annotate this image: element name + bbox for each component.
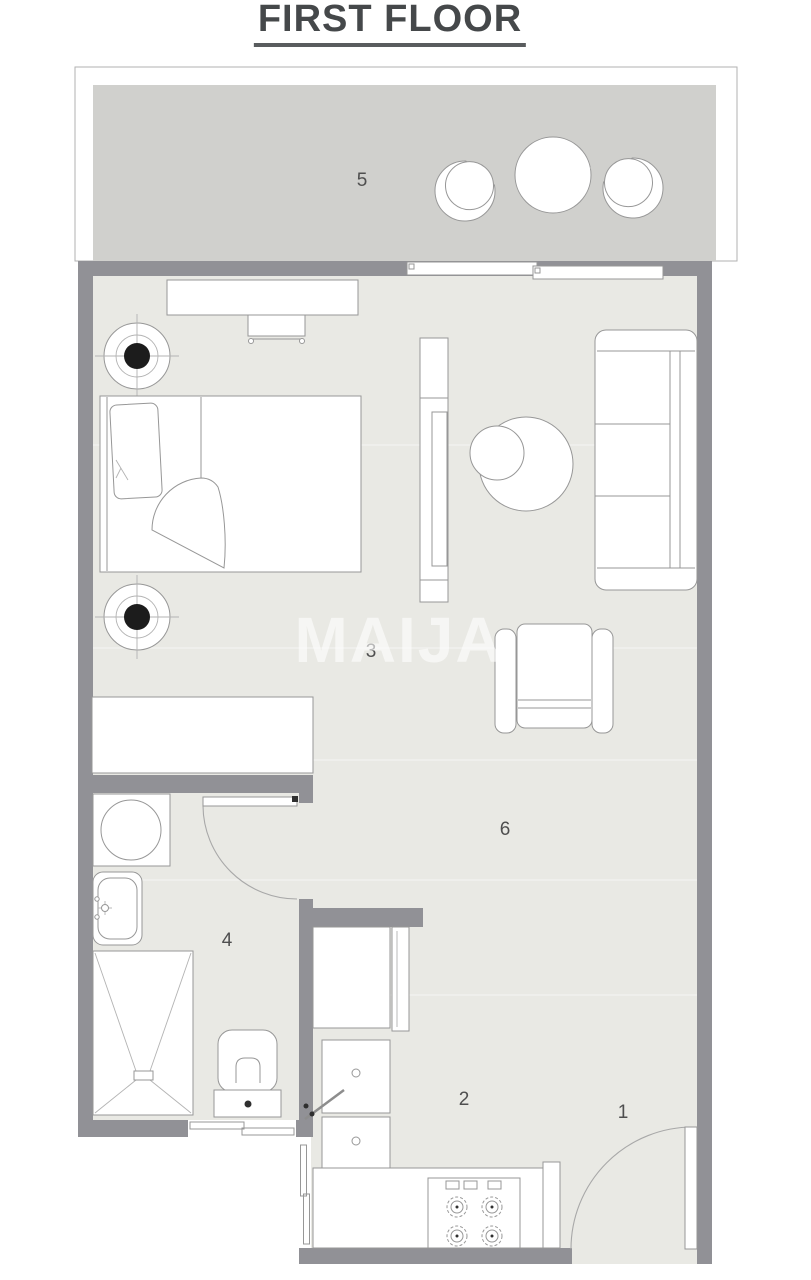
tall-cabinet — [392, 927, 409, 1031]
room-label-kitchen: 2 — [459, 1089, 470, 1111]
hall-window — [299, 1143, 311, 1246]
room-label-entrance: 1 — [618, 1102, 629, 1124]
floor-plan-page: FIRST FLOOR — [0, 0, 811, 1280]
fridge — [313, 927, 390, 1028]
room-label-living: 6 — [500, 819, 511, 841]
bathroom-sink — [93, 872, 142, 945]
bed — [100, 396, 361, 572]
wall-bathroom-right — [299, 899, 313, 1137]
toilet — [214, 1030, 281, 1117]
shower — [93, 951, 193, 1115]
room-label-bathroom: 4 — [222, 930, 233, 952]
armchair — [495, 624, 613, 733]
wall-bedroom-bathroom — [78, 775, 313, 793]
watermark: MAIJA — [294, 603, 503, 677]
washing-machine — [93, 794, 170, 866]
wall-bathroom-right-stub — [299, 793, 313, 803]
wardrobe — [92, 697, 313, 773]
wall-bathroom-bottom-stub — [296, 1120, 313, 1137]
balcony-table — [515, 137, 591, 213]
wall-bottom — [299, 1248, 572, 1264]
wall-left — [78, 261, 93, 1137]
desk-chair — [248, 315, 305, 344]
wall-bathroom-bottom — [78, 1120, 188, 1137]
tv-stand — [420, 338, 448, 602]
wall-right — [697, 261, 712, 1264]
room-label-balcony: 5 — [357, 170, 368, 192]
desk — [167, 280, 358, 315]
bathroom-window — [188, 1120, 296, 1137]
stove — [428, 1178, 520, 1248]
wall-kitchen-nook — [313, 908, 423, 927]
sofa — [595, 330, 697, 590]
